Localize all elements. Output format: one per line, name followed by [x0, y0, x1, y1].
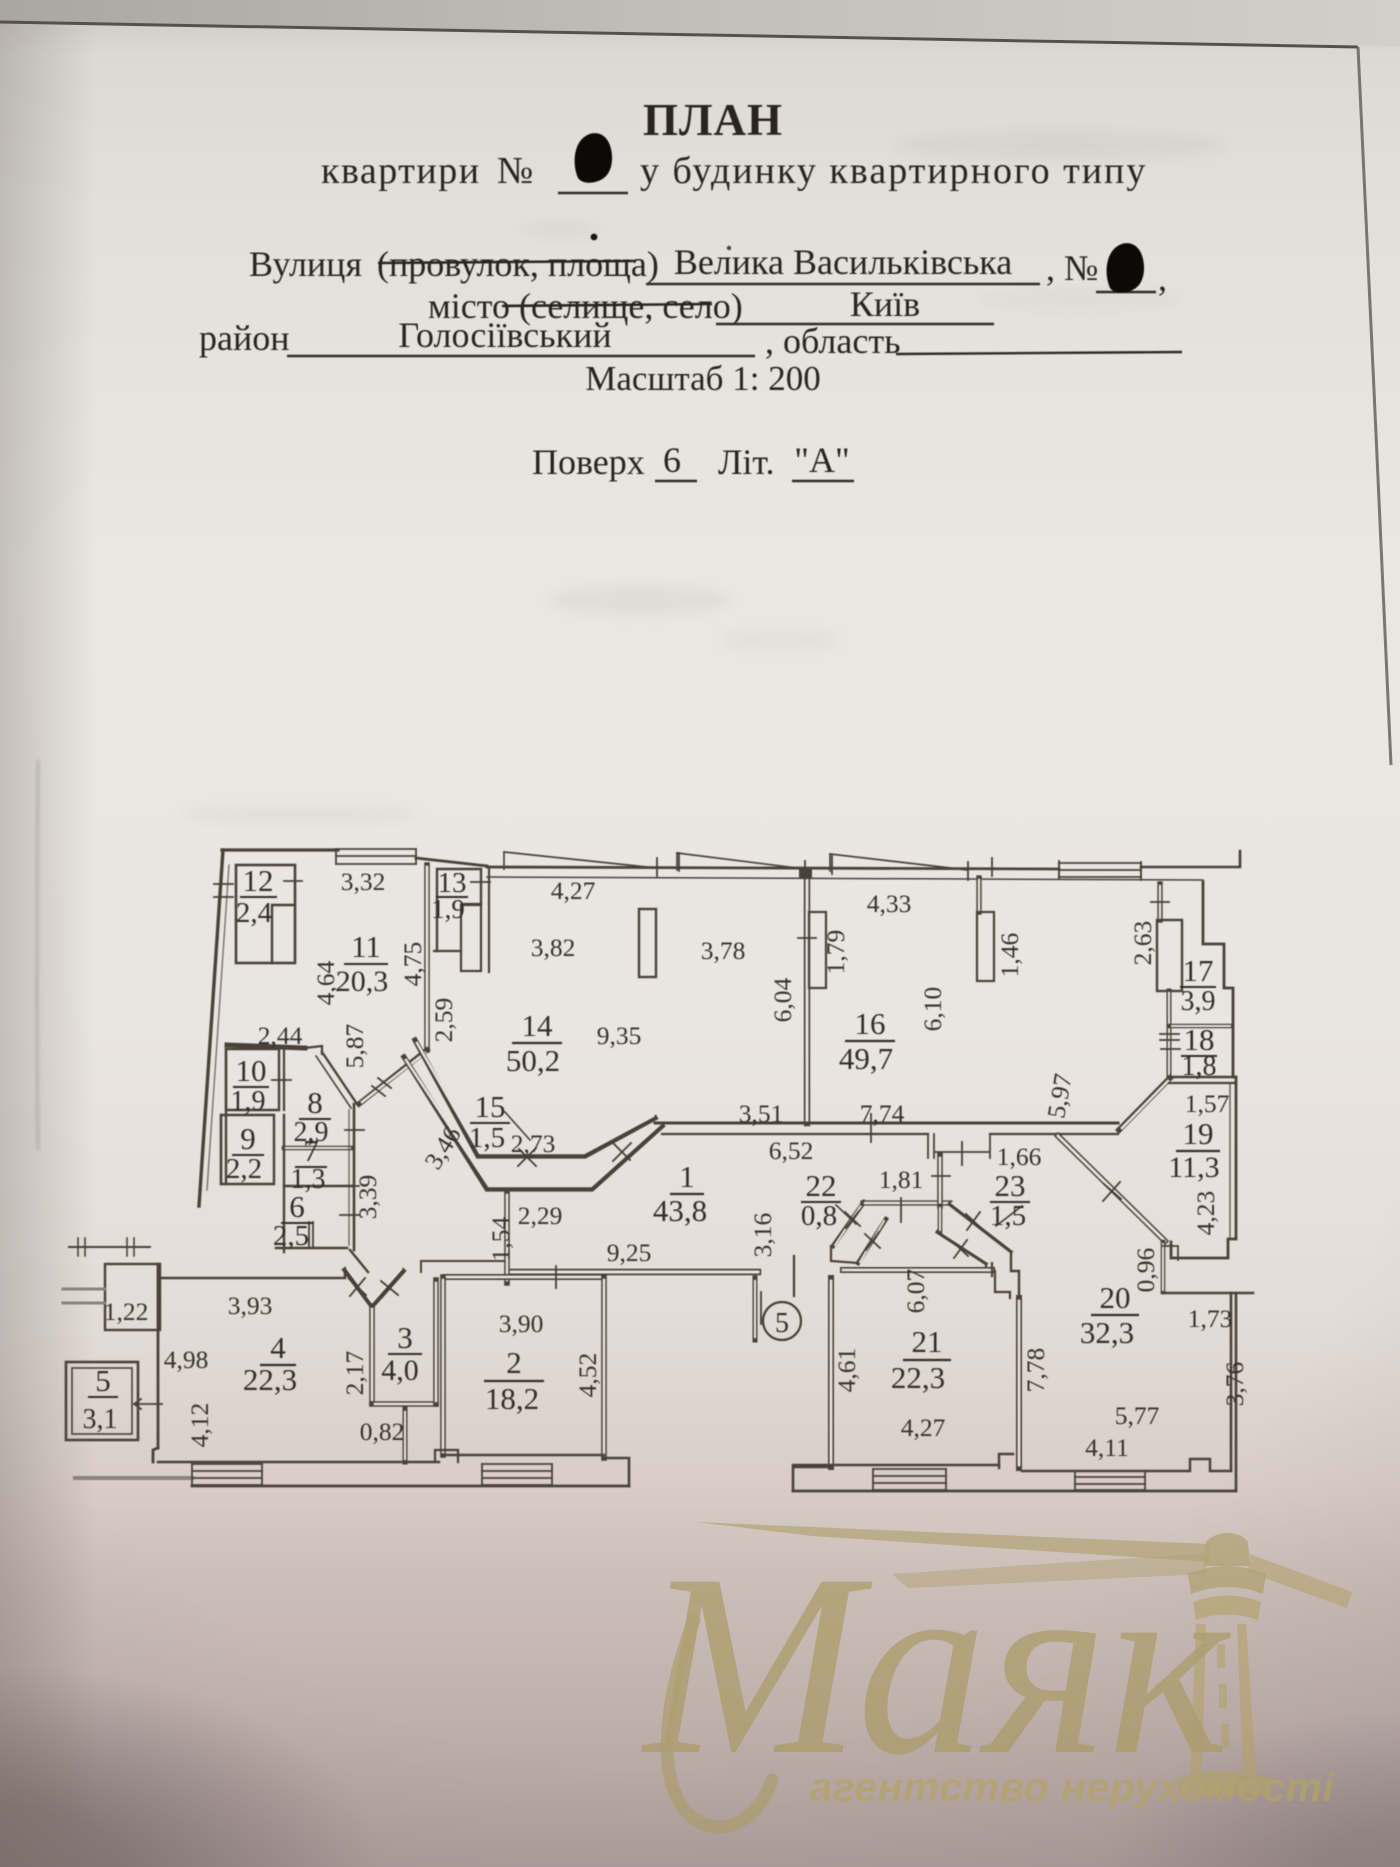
svg-text:21: 21 [912, 1324, 943, 1359]
svg-text:3,93: 3,93 [228, 1291, 273, 1320]
svg-text:,: , [1158, 258, 1167, 298]
svg-text:2,5: 2,5 [273, 1220, 309, 1252]
svg-text:4,33: 4,33 [867, 889, 912, 918]
svg-text:23: 23 [995, 1168, 1026, 1203]
svg-text:4,27: 4,27 [901, 1413, 946, 1442]
svg-text:2,4: 2,4 [236, 897, 273, 929]
svg-text:1,73: 1,73 [1188, 1304, 1233, 1333]
svg-text:0,8: 0,8 [801, 1200, 837, 1232]
svg-text:Вулиця: Вулиця [249, 244, 362, 284]
svg-text:2,44: 2,44 [258, 1021, 303, 1050]
svg-text:3,90: 3,90 [499, 1309, 544, 1338]
svg-text:6: 6 [289, 1189, 305, 1224]
svg-text:1,9: 1,9 [431, 894, 465, 924]
svg-text:20,3: 20,3 [336, 965, 389, 998]
svg-text:4,52: 4,52 [573, 1353, 602, 1398]
svg-text:2,2: 2,2 [226, 1153, 262, 1185]
svg-text:6,10: 6,10 [918, 987, 947, 1032]
svg-text:4,11: 4,11 [1085, 1433, 1129, 1462]
svg-text:15: 15 [475, 1089, 506, 1124]
svg-text:8: 8 [307, 1085, 323, 1120]
svg-text:20: 20 [1100, 1280, 1131, 1315]
svg-text:10: 10 [236, 1053, 267, 1088]
svg-text:5: 5 [95, 1363, 111, 1398]
svg-text:9,35: 9,35 [597, 1021, 642, 1050]
svg-text:17: 17 [1183, 953, 1214, 988]
svg-text:1,5: 1,5 [990, 1200, 1026, 1232]
svg-text:6,04: 6,04 [768, 977, 797, 1022]
svg-text:"А": "А" [794, 440, 849, 480]
svg-text:1,57: 1,57 [1185, 1089, 1230, 1118]
svg-text:Велика Васильківська: Велика Васильківська [674, 242, 1012, 282]
svg-text:3,16: 3,16 [748, 1213, 777, 1258]
svg-text:4,75: 4,75 [398, 942, 427, 987]
svg-text:1,5: 1,5 [469, 1122, 505, 1154]
svg-text:3,9: 3,9 [1181, 986, 1216, 1017]
svg-text:3,32: 3,32 [341, 867, 386, 896]
svg-text:6,52: 6,52 [769, 1136, 814, 1165]
svg-text:1,54: 1,54 [486, 1216, 515, 1261]
svg-text:5,77: 5,77 [1115, 1401, 1160, 1430]
svg-text:4: 4 [270, 1330, 286, 1365]
svg-text:32,3: 32,3 [1080, 1315, 1134, 1350]
svg-text:(провулок, площа): (провулок, площа) [377, 244, 659, 284]
svg-text:4,12: 4,12 [185, 1403, 214, 1448]
svg-text:4,98: 4,98 [164, 1345, 209, 1374]
svg-text:1,79: 1,79 [821, 930, 850, 975]
svg-text:19: 19 [1183, 1116, 1214, 1151]
svg-text:агентство нерухомості: агентство нерухомості [810, 1764, 1336, 1810]
svg-text:3,78: 3,78 [701, 936, 746, 965]
svg-text:ПЛАН: ПЛАН [643, 95, 783, 145]
svg-text:3,1: 3,1 [83, 1404, 118, 1435]
svg-text:0,82: 0,82 [360, 1417, 405, 1446]
svg-text:4,27: 4,27 [551, 876, 596, 905]
svg-text:7,78: 7,78 [1021, 1348, 1050, 1393]
svg-text:№: № [497, 150, 533, 192]
svg-text:4,23: 4,23 [1191, 1191, 1220, 1236]
svg-text:3,82: 3,82 [531, 933, 576, 962]
svg-text:14: 14 [522, 1008, 554, 1043]
svg-text:6: 6 [663, 440, 681, 480]
svg-text:4,0: 4,0 [381, 1354, 419, 1387]
svg-text:2,17: 2,17 [340, 1350, 369, 1395]
svg-text:квартири: квартири [321, 150, 481, 192]
svg-text:Літ.: Літ. [718, 442, 774, 482]
svg-text:1,8: 1,8 [1182, 1051, 1217, 1082]
svg-text:7,74: 7,74 [860, 1099, 905, 1128]
svg-text:50,2: 50,2 [506, 1043, 560, 1078]
svg-text:16: 16 [855, 1006, 886, 1041]
svg-text:3,51: 3,51 [739, 1099, 784, 1128]
svg-text:9,25: 9,25 [607, 1238, 652, 1267]
svg-text:район: район [199, 318, 290, 358]
svg-text:1,46: 1,46 [995, 933, 1024, 978]
svg-text:11: 11 [351, 929, 381, 964]
svg-text:5,87: 5,87 [340, 1023, 369, 1068]
svg-text:4,61: 4,61 [832, 1348, 861, 1393]
svg-text:22: 22 [806, 1168, 837, 1203]
svg-text:Масштаб 1: 200: Масштаб 1: 200 [585, 359, 820, 398]
svg-text:2,59: 2,59 [429, 998, 458, 1043]
svg-text:22,3: 22,3 [243, 1362, 297, 1397]
svg-text:5: 5 [775, 1308, 789, 1339]
svg-text:12: 12 [243, 863, 274, 898]
svg-text:1: 1 [679, 1159, 695, 1194]
svg-text:, №: , № [1046, 248, 1098, 288]
svg-text:, область: , область [765, 321, 901, 361]
svg-text:Київ: Київ [850, 284, 920, 324]
svg-text:22,3: 22,3 [891, 1360, 945, 1395]
svg-text:Поверх: Поверх [532, 442, 645, 482]
svg-text:43,8: 43,8 [653, 1193, 707, 1228]
svg-text:2,73: 2,73 [511, 1129, 556, 1158]
svg-text:у будинку квартирного типу: у будинку квартирного типу [640, 150, 1147, 192]
svg-text:2,63: 2,63 [1128, 921, 1157, 966]
svg-text:1,9: 1,9 [231, 1086, 266, 1117]
svg-text:1,81: 1,81 [879, 1165, 924, 1194]
svg-text:9: 9 [240, 1121, 256, 1156]
svg-text:3,39: 3,39 [353, 1175, 382, 1220]
svg-text:2: 2 [506, 1345, 522, 1380]
svg-text:11,3: 11,3 [1168, 1151, 1219, 1184]
svg-text:3,76: 3,76 [1220, 1362, 1249, 1407]
svg-text:1,22: 1,22 [104, 1297, 149, 1326]
svg-text:49,7: 49,7 [839, 1041, 893, 1076]
svg-text:18,2: 18,2 [485, 1381, 539, 1416]
svg-text:1,66: 1,66 [997, 1142, 1042, 1171]
svg-text:3: 3 [397, 1320, 413, 1355]
svg-text:0,96: 0,96 [1131, 1248, 1160, 1293]
svg-text:6,07: 6,07 [901, 1268, 930, 1313]
svg-text:2,29: 2,29 [518, 1201, 563, 1230]
svg-text:7: 7 [303, 1133, 319, 1168]
svg-text:Голосіївський: Голосіївський [398, 315, 611, 355]
